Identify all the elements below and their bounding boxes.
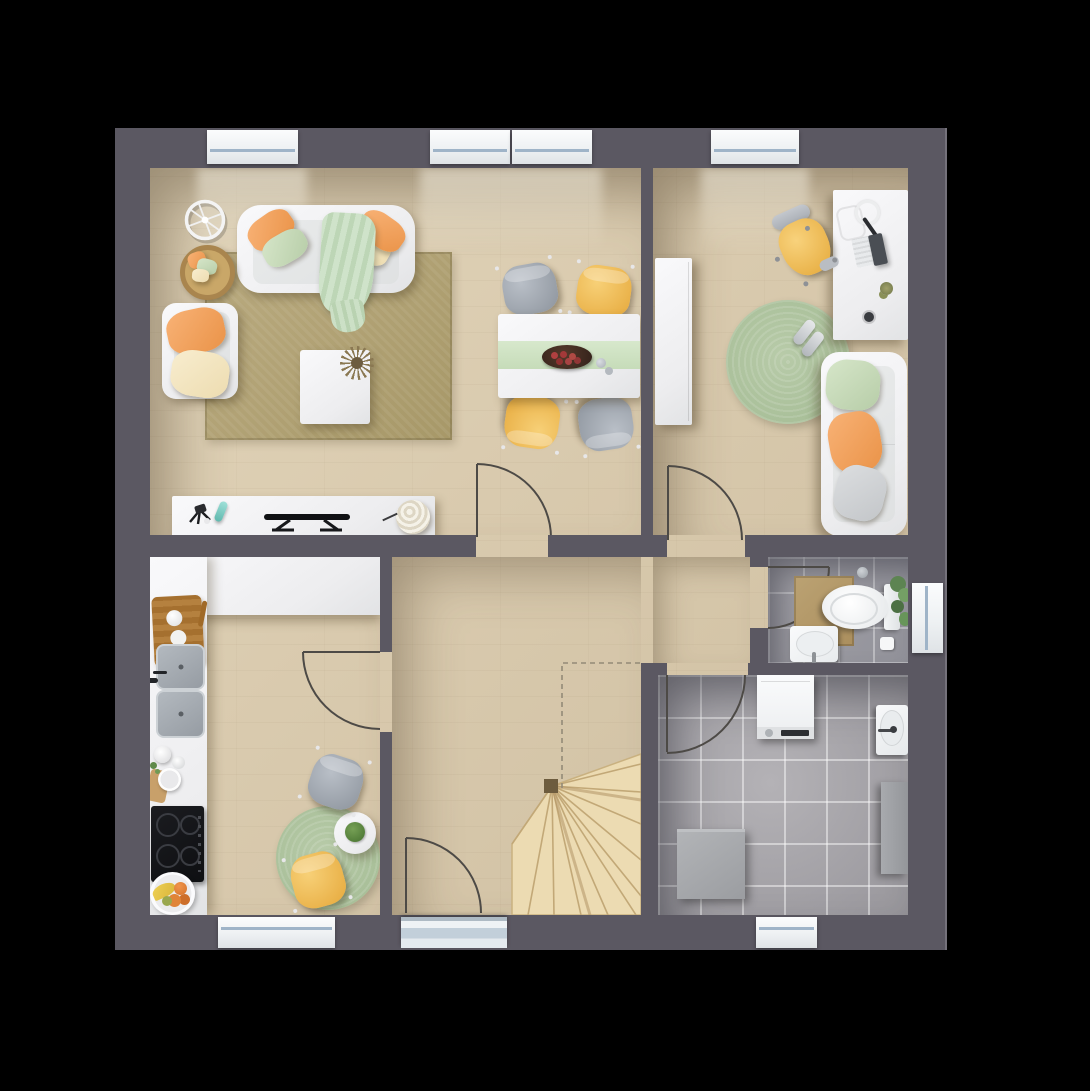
front-door <box>401 917 507 948</box>
dish-set <box>146 742 206 804</box>
berries <box>551 352 558 359</box>
basket-pillow-cream <box>191 268 209 282</box>
tv-sideboard <box>172 496 435 539</box>
kiwi <box>162 896 172 906</box>
door-hall-to-office <box>668 466 742 540</box>
window-office-top <box>711 130 799 164</box>
window-glass <box>714 149 796 152</box>
washer-lid-line <box>761 681 810 682</box>
sink-basin-upper <box>156 644 205 690</box>
cup <box>154 746 171 763</box>
dining-table <box>498 314 640 398</box>
eggs <box>166 610 183 627</box>
door-hall-to-kitchen <box>303 652 380 729</box>
utility-faucet-base <box>890 726 897 733</box>
office-pillow-green <box>824 358 881 412</box>
burner-2 <box>180 815 200 835</box>
cooktop-controls <box>198 816 201 872</box>
fruit-bowl <box>542 345 592 369</box>
office-chair-casters <box>774 256 781 263</box>
wall-living-south-right <box>548 535 667 557</box>
window-glass <box>515 149 589 152</box>
sink-basin-lower <box>156 690 205 738</box>
plant-leaf-3 <box>891 600 904 613</box>
flush-button <box>857 567 868 578</box>
utility-cabinet <box>881 782 908 874</box>
front-door-swing <box>406 838 481 913</box>
wall-bath-south <box>748 663 945 675</box>
wall-bath-west-lower <box>750 628 768 663</box>
wall-office-south <box>745 535 945 557</box>
plate <box>158 768 181 791</box>
fruit-plate <box>150 872 195 915</box>
dining-chair-yellow-top <box>574 262 634 319</box>
window-glass <box>210 149 295 152</box>
wall-kitchen-east-upper <box>380 557 392 652</box>
wall-kitchen-east-lower <box>380 732 392 915</box>
window-dining-top-right <box>512 130 592 164</box>
desk-plant <box>880 282 893 295</box>
pillow-basket <box>180 245 235 300</box>
bathroom-sink <box>790 626 838 662</box>
tv-on-stand <box>252 500 362 536</box>
washer-knob <box>765 729 773 737</box>
wardrobe-front-line <box>688 262 689 421</box>
pear-decor <box>596 358 606 368</box>
small-cup <box>172 756 185 769</box>
window-bathroom-right <box>912 583 943 653</box>
winder-staircase <box>512 754 641 915</box>
window-glass <box>221 927 332 930</box>
washer-control-panel <box>757 727 814 739</box>
window-utility-bottom <box>756 917 817 948</box>
wall-living-south-left <box>115 535 476 557</box>
floor-plan-canvas <box>0 0 1090 1091</box>
door-hall-to-dining <box>477 464 551 538</box>
door-hall-to-utility <box>667 675 745 753</box>
washer-display <box>781 730 809 736</box>
cooktop <box>151 806 204 882</box>
office-wardrobe <box>655 258 692 425</box>
oranges <box>174 882 187 895</box>
wall-utility-north-stub <box>658 663 667 675</box>
coffee-table-plant-center <box>351 357 363 369</box>
window-glass <box>433 149 507 152</box>
burner-3 <box>156 844 180 868</box>
utility-sink <box>876 705 908 755</box>
window-living-top <box>207 130 298 164</box>
toilet-paper <box>880 637 894 650</box>
wall-stairs-utility <box>641 663 658 915</box>
camera-decor <box>184 502 218 528</box>
coffee-table <box>300 350 370 424</box>
burner-1 <box>156 813 180 837</box>
window-glass <box>925 586 928 650</box>
toilet-seat-ring <box>830 593 878 625</box>
wall-dining-office <box>641 168 653 535</box>
stair-newel-post <box>544 779 558 793</box>
flower-ball-decor <box>396 500 430 534</box>
computer-mouse <box>862 310 876 324</box>
nook-table <box>334 812 376 854</box>
window-dining-top-left <box>430 130 510 164</box>
storage-box <box>677 829 745 899</box>
burner-4 <box>180 846 200 866</box>
nook-table-plant <box>345 822 365 842</box>
window-glass <box>759 927 814 930</box>
washing-machine <box>757 675 814 739</box>
front-door-threshold <box>401 917 507 921</box>
wall-bath-west-upper <box>750 557 768 567</box>
window-kitchen-bottom <box>218 917 335 948</box>
herbs <box>150 762 157 769</box>
wall-wheel-decor <box>187 202 226 242</box>
